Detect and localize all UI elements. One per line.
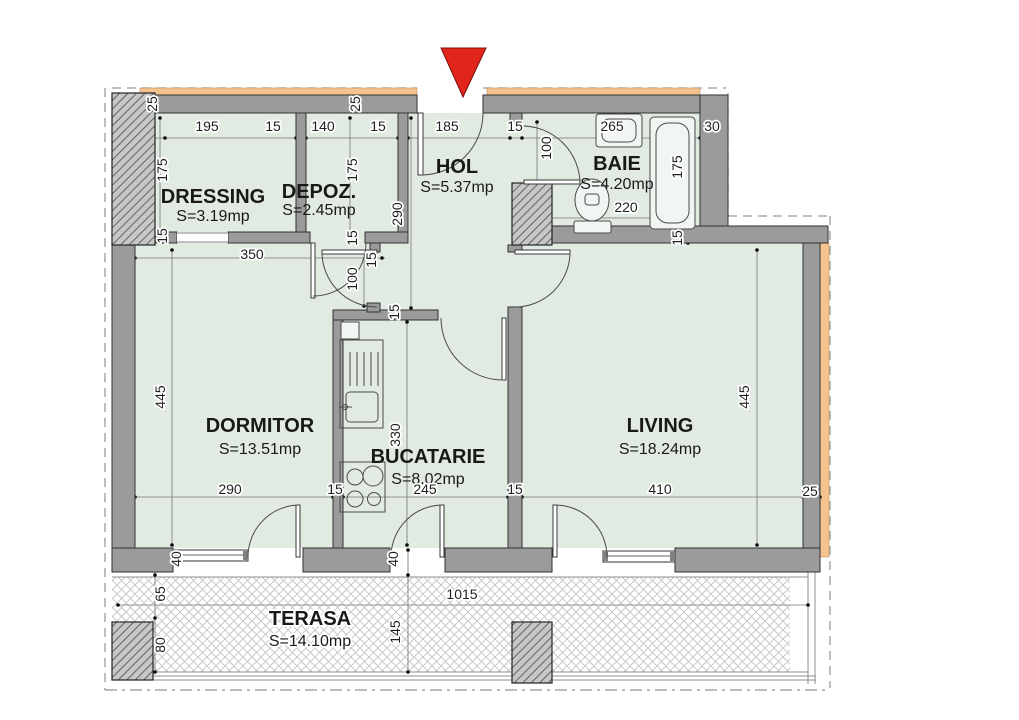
room-area-hol: S=5.37mp [420,179,493,196]
room-area-dressing: S=3.19mp [176,208,249,225]
window [603,551,675,562]
floor-plan-page: DRESSING S=3.19mp DEPOZ. S=2.45mp HOL S=… [0,0,1019,720]
dimension-label: 15 [344,230,360,246]
wall-segment [112,548,173,572]
dimension-label: 15 [669,230,685,246]
dimension-label: 1015 [446,586,477,602]
column [512,183,552,245]
column [512,622,552,683]
wall-segment [675,548,820,572]
dimension-label: 25 [347,96,363,112]
wall-segment [140,95,417,113]
column [112,93,155,245]
dimension-label: 330 [387,423,403,447]
bath-door-leaf [524,180,580,184]
bedroom-terrace-door-leaf [296,505,300,557]
room-label-dormitor: DORMITOR [206,415,315,437]
dimension-label: 15 [363,252,379,268]
dimension-label: 15 [370,118,386,134]
dimension-label: 220 [614,199,638,215]
dimension-label: 65 [152,586,168,602]
room-area-terasa: S=14.10mp [269,633,351,650]
dressing-opening [177,232,228,243]
dimension-label: 245 [413,481,437,497]
kitchen-terrace-door-leaf [440,505,444,557]
dimension-label: 30 [704,118,720,134]
dimension-label: 445 [736,385,752,409]
storage-door-leaf [311,243,315,298]
dimension-label: 15 [265,118,281,134]
dimension-label: 445 [152,385,168,409]
room-label-bucatarie: BUCATARIE [371,446,486,468]
dimension-label: 15 [507,118,523,134]
floor-plan-svg: DRESSING S=3.19mp DEPOZ. S=2.45mp HOL S=… [0,0,1019,720]
wall-segment [333,320,343,548]
dimension-label: 145 [387,620,403,644]
dimension-label: 350 [240,246,264,262]
wall-segment [112,245,135,572]
dimension-label: 410 [648,481,672,497]
room-label-hol: HOL [436,156,478,178]
dimension-label: 15 [327,481,343,497]
wall-segment [508,307,522,548]
entrance-door-leaf [418,113,423,175]
dimension-label: 140 [311,118,335,134]
dimension-label: 290 [389,202,405,226]
dimension-label: 175 [669,155,685,179]
wall-segment [700,95,728,226]
column [112,622,153,680]
dimension-label: 80 [152,637,168,653]
dimension-label: 25 [144,96,160,112]
room-area-dormitor: S=13.51mp [219,441,301,458]
living-terrace-door-leaf [553,505,557,557]
dimension-label: 175 [154,158,170,182]
wall-segment [365,232,408,243]
room-area-baie: S=4.20mp [580,176,653,193]
dimension-label: 175 [344,158,360,182]
room-area-living: S=18.24mp [619,441,701,458]
dimension-label: 290 [218,481,242,497]
room-label-baie: BAIE [593,153,641,175]
dimension-label: 40 [168,551,184,567]
dimension-label: 15 [386,304,402,320]
kitchen-boiler [341,322,359,339]
living-door-leaf [515,250,570,254]
room-label-dressing: DRESSING [161,186,265,208]
dimension-label: 195 [195,118,219,134]
room-label-terasa: TERASA [269,608,351,630]
wall-segment [803,243,820,572]
dimension-label: 100 [538,136,554,160]
dimension-label: 40 [385,551,401,567]
dimension-label: 185 [435,118,459,134]
dimension-label: 15 [154,228,170,244]
room-label-living: LIVING [627,415,694,437]
wall-segment [228,232,310,243]
wall-segment [303,548,390,572]
wall-segment [445,548,552,572]
kitchen-door-leaf [502,318,506,380]
room-area-depozit: S=2.45mp [282,202,355,219]
wall-segment [367,303,380,312]
wall-segment [483,95,707,113]
room-label-depozit: DEPOZ. [282,181,356,203]
dimension-label: 15 [507,481,523,497]
dimension-label: 265 [600,118,624,134]
dimension-label: 25 [802,483,818,499]
window [173,550,248,561]
dimension-label: 100 [344,267,360,291]
